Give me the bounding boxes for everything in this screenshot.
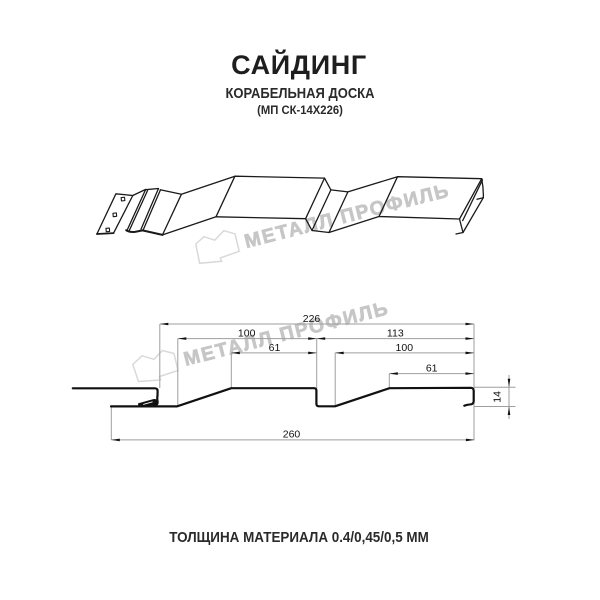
svg-text:МЕТАЛЛ ПРОФИЛЬ: МЕТАЛЛ ПРОФИЛЬ — [242, 179, 452, 252]
svg-text:226: 226 — [303, 313, 321, 325]
svg-text:100: 100 — [238, 328, 256, 340]
svg-text:61: 61 — [426, 362, 438, 374]
svg-text:61: 61 — [269, 342, 281, 354]
svg-text:100: 100 — [396, 342, 414, 354]
svg-text:14: 14 — [492, 391, 504, 403]
svg-text:260: 260 — [283, 429, 301, 441]
svg-text:113: 113 — [387, 328, 404, 340]
svg-text:МЕТАЛЛ ПРОФИЛЬ: МЕТАЛЛ ПРОФИЛЬ — [182, 297, 392, 370]
